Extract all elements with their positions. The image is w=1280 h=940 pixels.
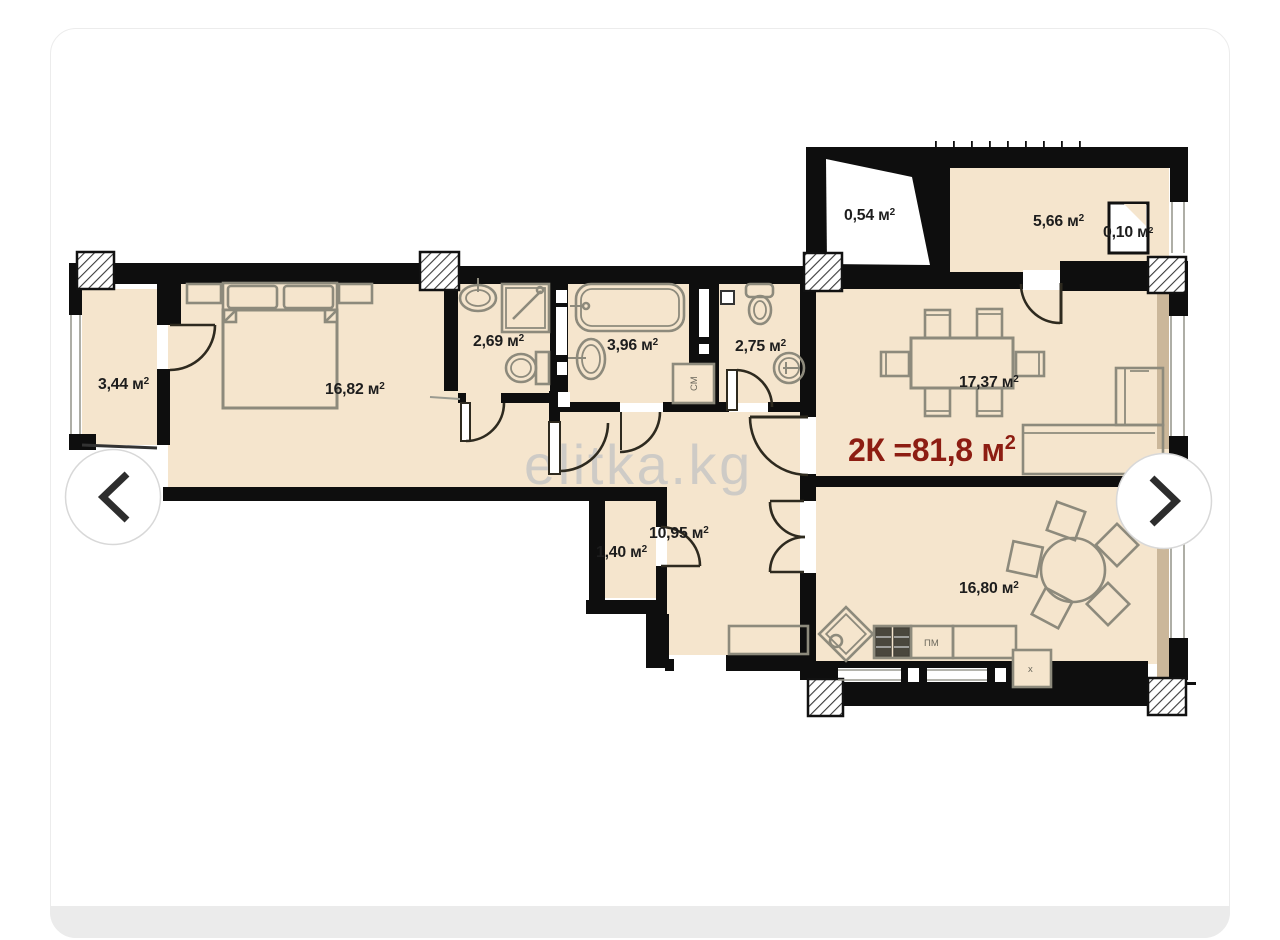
svg-text:2,75 м2: 2,75 м2 bbox=[735, 338, 787, 355]
svg-text:3,96 м2: 3,96 м2 bbox=[607, 337, 659, 354]
svg-text:16,82 м2: 16,82 м2 bbox=[325, 381, 385, 398]
svg-text:5,66 м2: 5,66 м2 bbox=[1033, 213, 1085, 230]
svg-text:СМ: СМ bbox=[689, 376, 700, 391]
svg-text:ПМ: ПМ bbox=[924, 638, 939, 649]
svg-text:16,80 м2: 16,80 м2 bbox=[959, 580, 1019, 597]
svg-text:0,10 м2: 0,10 м2 bbox=[1103, 224, 1154, 241]
svg-text:10,95 м2: 10,95 м2 bbox=[649, 525, 709, 542]
svg-text:17,37 м2: 17,37 м2 bbox=[959, 374, 1019, 391]
svg-text:1,40 м2: 1,40 м2 bbox=[596, 544, 648, 561]
svg-text:x: x bbox=[1028, 664, 1033, 675]
svg-text:0,54 м2: 0,54 м2 bbox=[844, 207, 896, 224]
svg-text:3,44 м2: 3,44 м2 bbox=[98, 376, 150, 393]
svg-text:2К =81,8 м2: 2К =81,8 м2 bbox=[848, 432, 1016, 468]
svg-text:2,69 м2: 2,69 м2 bbox=[473, 333, 525, 350]
